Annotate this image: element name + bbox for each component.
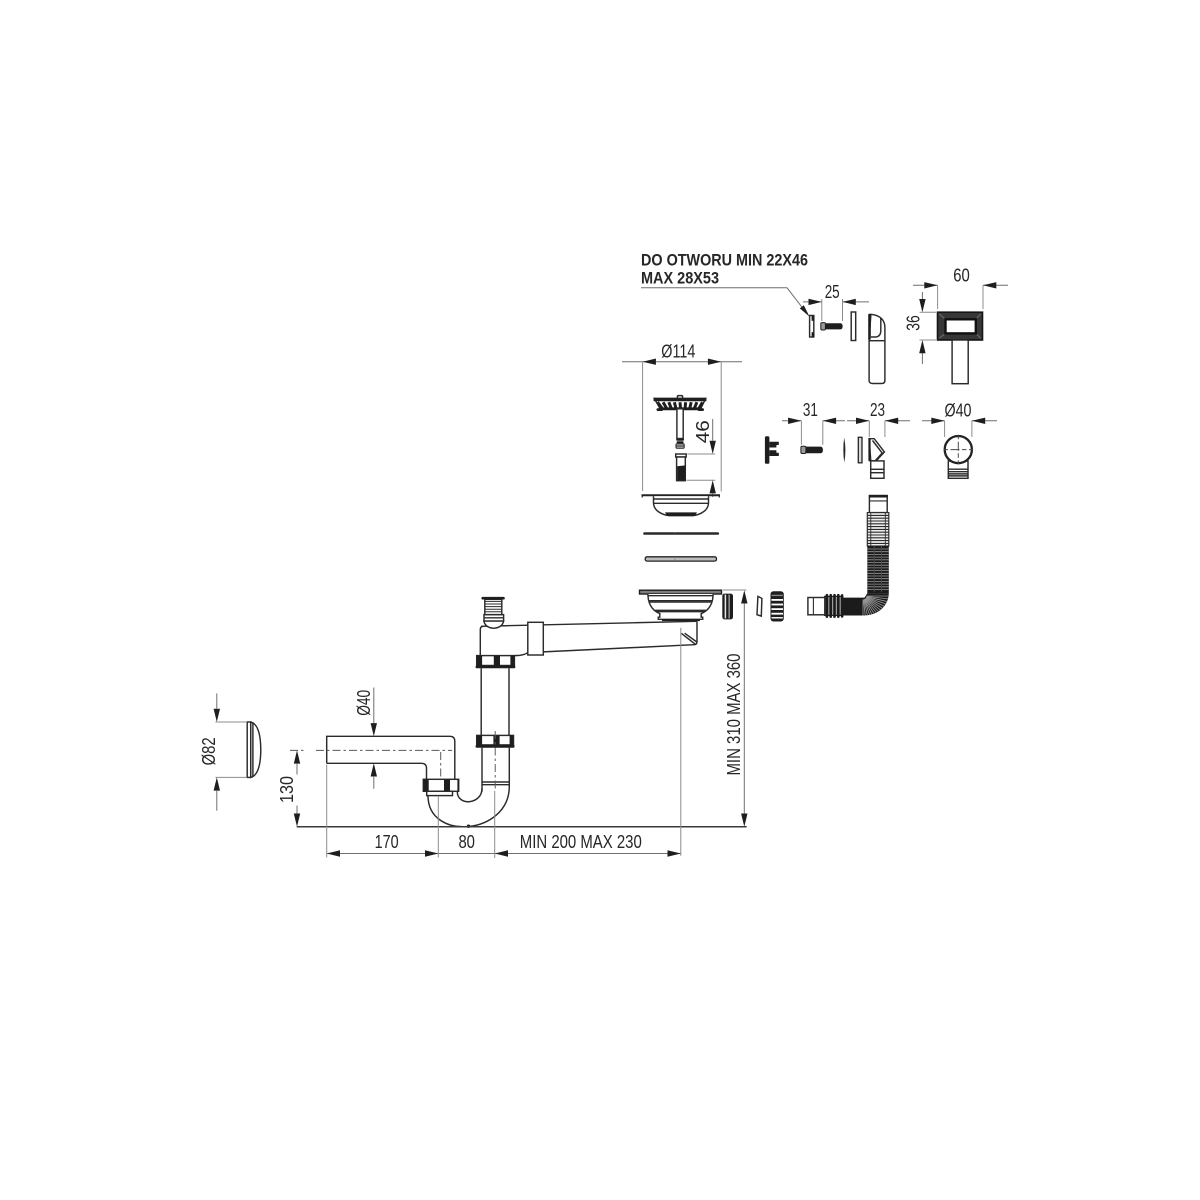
svg-text:46: 46 — [693, 420, 713, 443]
svg-text:Ø114: Ø114 — [661, 341, 695, 361]
svg-text:25: 25 — [825, 282, 840, 302]
svg-text:80: 80 — [458, 832, 475, 852]
svg-text:31: 31 — [803, 400, 818, 420]
svg-text:MIN 310 MAX 360: MIN 310 MAX 360 — [724, 654, 744, 776]
svg-text:Ø82: Ø82 — [199, 737, 219, 765]
svg-text:130: 130 — [277, 776, 297, 803]
svg-text:Ø40: Ø40 — [354, 690, 374, 716]
svg-text:23: 23 — [870, 400, 885, 420]
svg-text:36: 36 — [904, 315, 924, 331]
svg-text:MIN 200 MAX 230: MIN 200 MAX 230 — [520, 832, 642, 852]
svg-text:170: 170 — [375, 832, 399, 852]
svg-text:60: 60 — [953, 266, 970, 286]
svg-text:DO OTWORU MIN 22X46: DO OTWORU MIN 22X46 — [641, 250, 808, 269]
svg-text:Ø40: Ø40 — [945, 401, 972, 421]
svg-text:MAX 28X53: MAX 28X53 — [641, 269, 719, 288]
